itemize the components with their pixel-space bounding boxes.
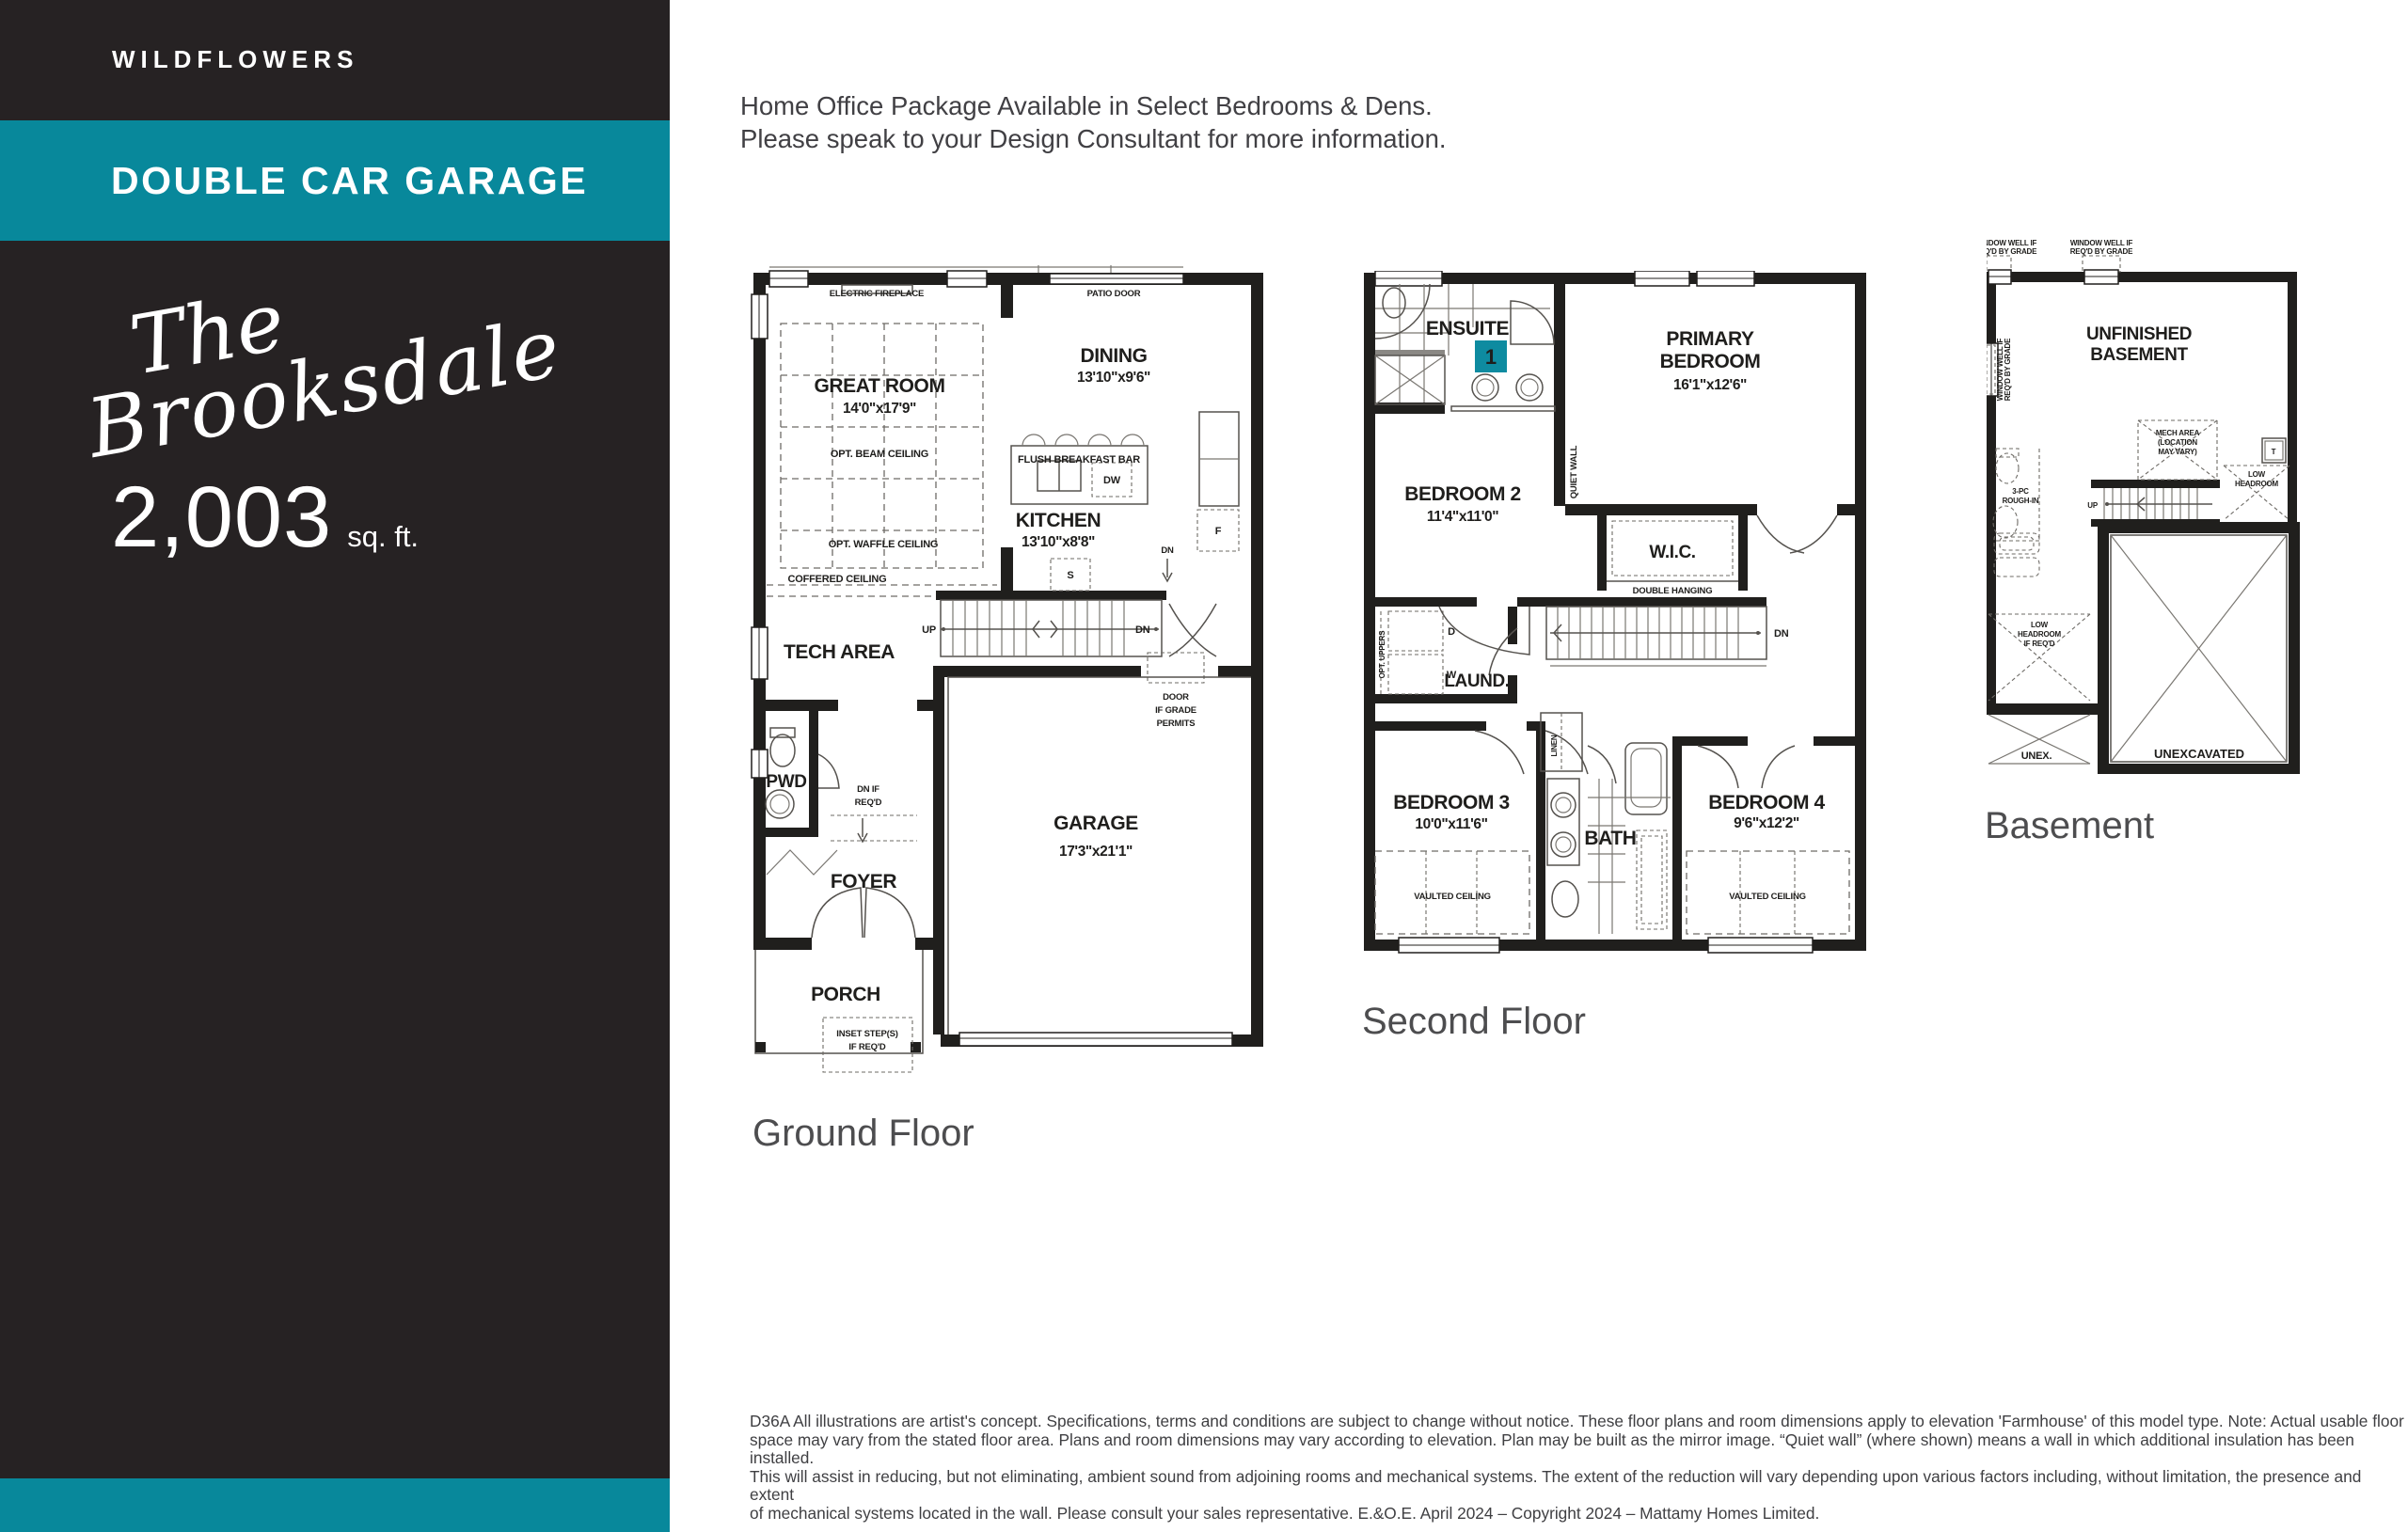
second-floor-title: Second Floor: [1362, 1001, 1586, 1043]
unex-label: UNEX.: [2021, 750, 2052, 762]
low-headroom-right-line2: HEADROOM: [2235, 480, 2278, 488]
ground-floor-plan: ELECTRIC FIREPLACE PATIO DOOR GREAT ROOM…: [748, 265, 1275, 1075]
sidebar: WILDFLOWERS DOUBLE CAR GARAGE The Brooks…: [0, 0, 670, 1532]
coffered-ceiling-label: COFFERED CEILING: [788, 574, 887, 585]
window-well-mid-line2: REQ'D BY GRADE: [2070, 247, 2133, 256]
community-name: WILDFLOWERS: [112, 45, 358, 74]
lhr-line1: LOW: [2031, 621, 2049, 629]
great-room-label: GREAT ROOM: [814, 375, 944, 397]
mech-area-line3: MAY VARY): [2158, 448, 2197, 456]
inset-steps-line1: INSET STEP(S): [836, 1029, 898, 1039]
laundry-label: LAUND.: [1444, 671, 1509, 691]
legal-footnote-line2: space may vary from the stated floor are…: [750, 1431, 2405, 1468]
rough-in-line1: 3-PC: [2012, 487, 2029, 496]
ground-stairs: [941, 600, 1162, 656]
bedroom2-dim: 11'4"x11'0": [1427, 509, 1498, 525]
garage-label: GARAGE: [1053, 813, 1138, 834]
lhr-line2: HEADROOM: [2018, 630, 2061, 639]
home-office-note-line2: Please speak to your Design Consultant f…: [740, 122, 1447, 155]
dining-label: DINING: [1080, 345, 1147, 367]
electric-fireplace-label: ELECTRIC FIREPLACE: [830, 289, 924, 299]
legal-footnote-line1: D36A All illustrations are artist's conc…: [750, 1413, 2405, 1431]
ground-great-room-ceiling-grid: [767, 324, 997, 596]
vaulted-ceiling-label-left: VAULTED CEILING: [1414, 892, 1491, 902]
second-floor-text-labels: ENSUITE 1 PRIMARY BEDROOM 16'1"x12'6" QU…: [1378, 318, 1826, 902]
dn-label: DN: [1135, 624, 1150, 636]
kitchen-label: KITCHEN: [1016, 510, 1101, 531]
unfinished-basement-line2: BASEMENT: [2090, 345, 2188, 365]
bedroom3-label: BEDROOM 3: [1393, 792, 1510, 813]
ground-floor-title: Ground Floor: [752, 1113, 974, 1155]
ensuite-fixtures: [1375, 284, 1555, 411]
garage-banner-label: DOUBLE CAR GARAGE: [111, 159, 588, 203]
tech-area-label: TECH AREA: [784, 641, 895, 663]
quiet-wall-label: QUIET WALL: [1569, 445, 1579, 498]
pwd-label: PWD: [766, 772, 806, 792]
home-office-note-line1: Home Office Package Available in Select …: [740, 89, 1447, 122]
dryer-label: D: [1448, 626, 1455, 638]
dn-if-reqd-line1: DN IF: [857, 784, 879, 795]
dn-vestibule-label: DN: [1161, 545, 1174, 556]
dw-label: DW: [1103, 475, 1121, 486]
door-grade-line3: PERMITS: [1157, 719, 1196, 729]
garage-inner-outline: [948, 677, 1251, 1046]
model-name: The Brooksdale: [70, 238, 567, 467]
second-floor-plan: ENSUITE 1 PRIMARY BEDROOM 16'1"x12'6" QU…: [1362, 271, 1870, 962]
second-windows: [1375, 271, 1813, 953]
dining-dim: 13'10"x9'6": [1077, 370, 1150, 386]
window-well-left-line1: WINDOW WELL IF: [1987, 240, 2036, 247]
inset-steps-line2: IF REQ'D: [848, 1042, 886, 1052]
mech-area-line1: MECH AREA: [2156, 429, 2200, 437]
opt-uppers-label: OPT. UPPERS: [1378, 630, 1386, 679]
lhr-line3: IF REQ'D: [2024, 640, 2055, 648]
door-grade-line2: IF GRADE: [1155, 705, 1196, 716]
kitchen-island: [1011, 434, 1148, 504]
bath-label: BATH: [1584, 828, 1636, 849]
shelf-label: S: [1067, 570, 1073, 581]
kitchen-dim: 13'10"x8'8": [1022, 534, 1095, 550]
basement-stairs: [2104, 488, 2212, 519]
basement-title: Basement: [1985, 805, 2154, 847]
square-footage-unit: sq. ft.: [347, 520, 419, 553]
basement-up-label: UP: [2087, 501, 2099, 510]
dn-if-reqd-line2: REQ'D: [855, 798, 882, 808]
vaulted-ceiling-label-right: VAULTED CEILING: [1729, 892, 1806, 902]
linen-label: LINEN: [1550, 734, 1559, 756]
door-grade-line1: DOOR: [1163, 692, 1189, 703]
primary-bedroom-label-1: PRIMARY: [1666, 328, 1754, 350]
window-well-mid-line1: WINDOW WELL IF: [2070, 240, 2133, 247]
low-headroom-right-line1: LOW: [2248, 470, 2266, 479]
bottom-teal-band: [0, 1478, 670, 1532]
patio-door-label: PATIO DOOR: [1087, 289, 1141, 299]
kitchen-pantry-and-fridge: [1051, 412, 1239, 591]
foyer-label: FOYER: [831, 871, 897, 892]
primary-bedroom-dim: 16'1"x12'6": [1673, 377, 1747, 393]
double-hanging-label: DOUBLE HANGING: [1633, 586, 1713, 596]
garage-dim: 17'3"x21'1": [1059, 844, 1133, 860]
flush-breakfast-bar-label: FLUSH BREAKFAST BAR: [1018, 454, 1140, 466]
second-stairs: [1546, 607, 1766, 666]
bedroom3-dim: 10'0"x11'6": [1415, 816, 1487, 832]
legal-footnote-line4: of mechanical systems located in the wal…: [750, 1505, 2405, 1524]
wic-interior: [1607, 515, 1837, 581]
unexcavated-label: UNEXCAVATED: [2154, 747, 2244, 761]
square-footage: 2,003sq. ft.: [111, 468, 419, 567]
bedroom2-label: BEDROOM 2: [1404, 483, 1521, 505]
home-office-note: Home Office Package Available in Select …: [740, 89, 1447, 155]
basement-text-labels: WINDOW WELL IF REQ'D BY GRADE WINDOW WEL…: [1987, 240, 2279, 762]
up-label: UP: [922, 624, 936, 636]
bedroom4-dim: 9'6"x12'2": [1734, 815, 1799, 831]
primary-bedroom-label-2: BEDROOM: [1660, 351, 1761, 372]
unexcavated-region: [2111, 535, 2287, 762]
linen-closet: [1541, 713, 1588, 774]
garage-door-if-grade: [1148, 653, 1204, 683]
window-well-left-line2: REQ'D BY GRADE: [1987, 247, 2037, 256]
square-footage-value: 2,003: [111, 469, 332, 565]
mech-area-line2: (LOCATION: [2158, 438, 2197, 447]
basement-plan: WINDOW WELL IF REQ'D BY GRADE WINDOW WEL…: [1987, 240, 2302, 781]
basement-tubs: [1994, 533, 2039, 576]
garage-vestibule-doors: [1163, 559, 1216, 656]
fridge-label: F: [1215, 526, 1222, 537]
dn-label-second: DN: [1774, 628, 1789, 640]
legal-footnote: D36A All illustrations are artist's conc…: [750, 1413, 2405, 1523]
legal-footnote-line3: This will assist in reducing, but not el…: [750, 1468, 2405, 1505]
rough-in-line2: ROUGH-IN: [2003, 497, 2039, 505]
opt-waffle-ceiling-label: OPT. WAFFLE CEILING: [829, 539, 939, 550]
porch-outline: [755, 950, 923, 1072]
ensuite-badge-number: 1: [1485, 345, 1497, 369]
opt-beam-ceiling-label: OPT. BEAM CEILING: [831, 449, 928, 460]
garage-banner: DOUBLE CAR GARAGE: [0, 120, 670, 241]
unfinished-basement-line1: UNFINISHED: [2086, 324, 2192, 344]
wic-label: W.I.C.: [1649, 543, 1695, 562]
window-well-side-line2: REQ'D BY GRADE: [2004, 338, 2012, 401]
tank-label: T: [2272, 448, 2276, 456]
ensuite-label: ENSUITE: [1426, 318, 1510, 340]
great-room-dim: 14'0"x17'9": [843, 401, 916, 417]
porch-label: PORCH: [811, 984, 880, 1005]
bedroom4-label: BEDROOM 4: [1708, 792, 1825, 813]
